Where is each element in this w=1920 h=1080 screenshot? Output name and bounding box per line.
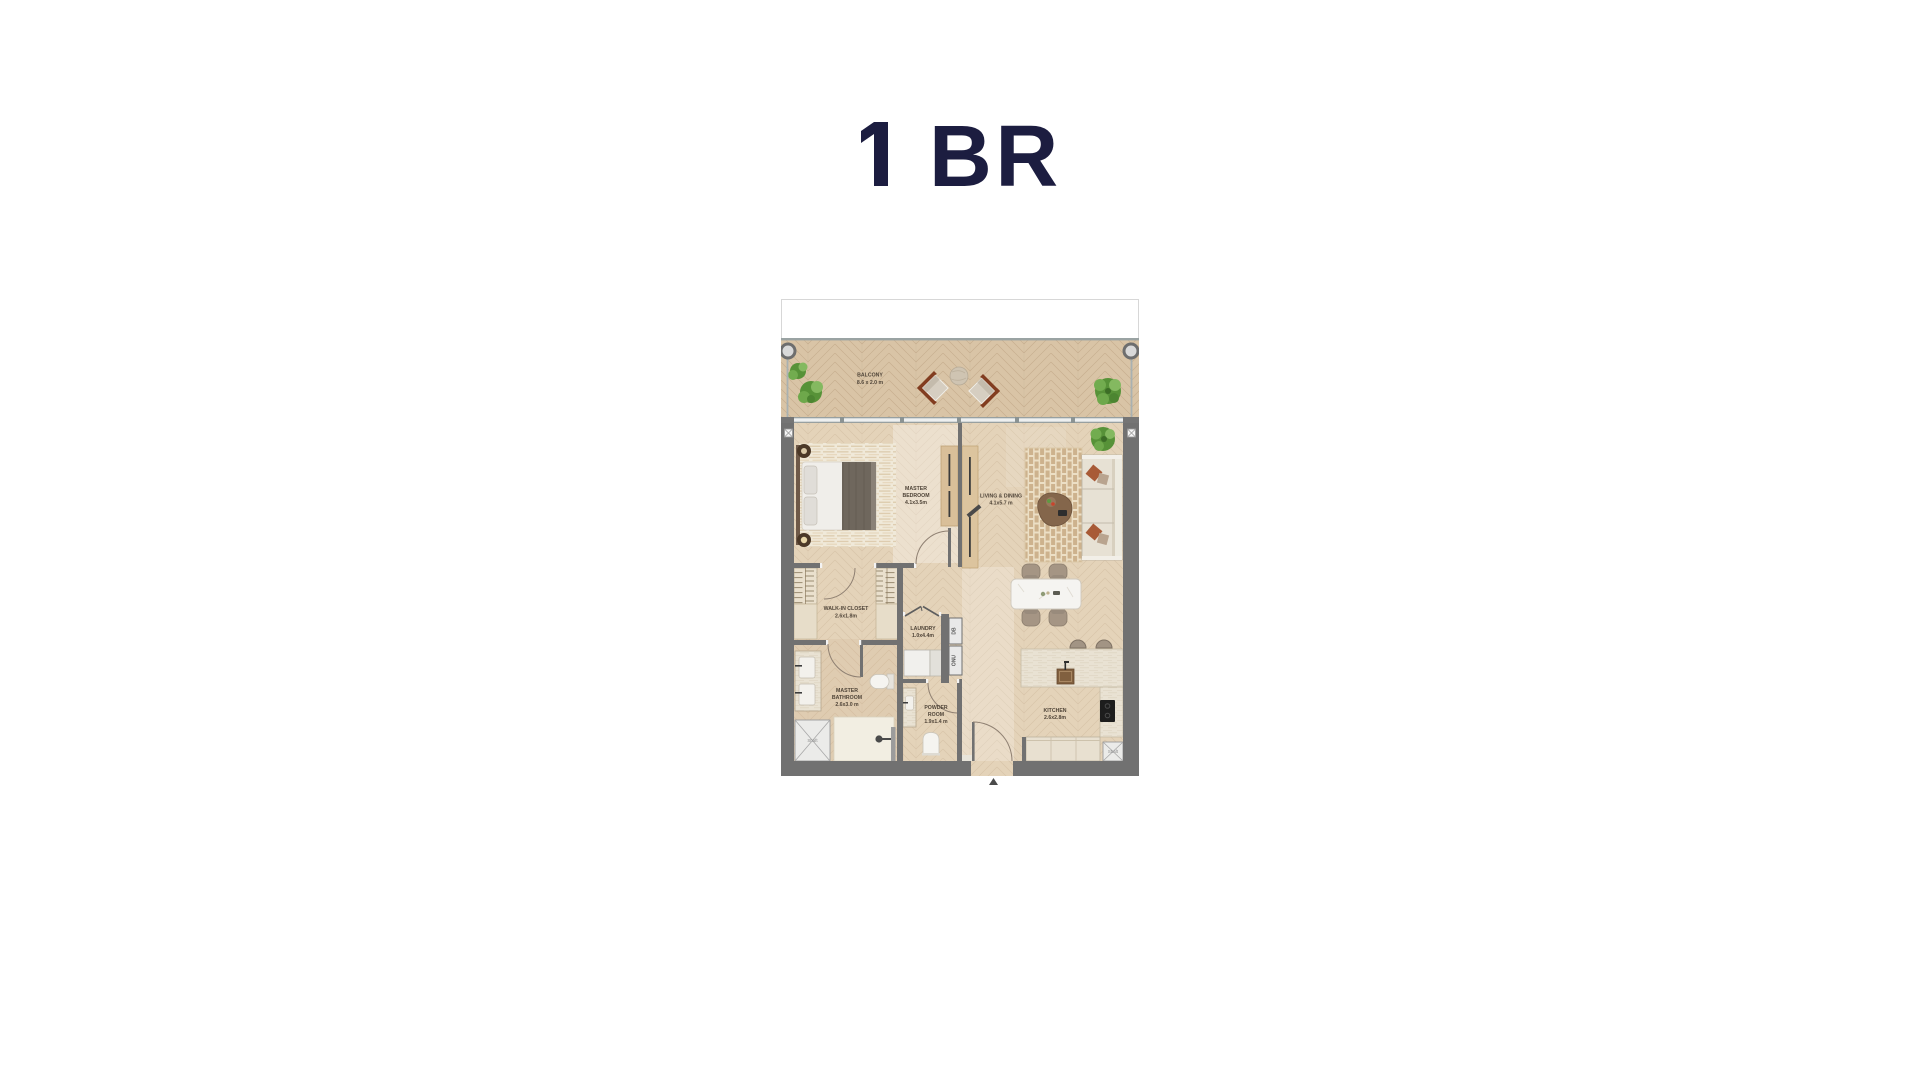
- svg-text:1.9x1.4 m: 1.9x1.4 m: [924, 719, 948, 725]
- svg-text:Shaft: Shaft: [807, 738, 818, 743]
- svg-text:8.6 x 2.0 m: 8.6 x 2.0 m: [857, 380, 884, 386]
- svg-text:ROOM: ROOM: [928, 712, 944, 718]
- svg-text:MASTER: MASTER: [836, 688, 858, 694]
- svg-text:LAUNDRY: LAUNDRY: [910, 626, 936, 632]
- svg-text:1.0x4.4m: 1.0x4.4m: [912, 633, 934, 639]
- svg-text:LIVING & DINING: LIVING & DINING: [980, 494, 1022, 500]
- svg-text:4.1x5.7 m: 4.1x5.7 m: [989, 501, 1013, 507]
- svg-text:DB: DB: [952, 627, 958, 635]
- svg-text:KITCHEN: KITCHEN: [1043, 708, 1066, 714]
- svg-text:Shaft: Shaft: [1108, 749, 1119, 754]
- svg-text:BALCONY: BALCONY: [857, 373, 883, 379]
- svg-text:ONU: ONU: [952, 655, 958, 667]
- svg-text:POWDER: POWDER: [924, 705, 948, 711]
- svg-text:BATHROOM: BATHROOM: [832, 695, 862, 701]
- svg-text:2.6x2.8m: 2.6x2.8m: [1044, 715, 1066, 721]
- svg-text:BEDROOM: BEDROOM: [902, 493, 929, 499]
- svg-text:2.6x1.8m: 2.6x1.8m: [835, 614, 857, 620]
- svg-text:BR: BR: [929, 108, 1062, 205]
- svg-text:4.1x3.5m: 4.1x3.5m: [905, 500, 927, 506]
- svg-text:2.6x3.0 m: 2.6x3.0 m: [835, 702, 859, 708]
- svg-text:WALK-IN CLOSET: WALK-IN CLOSET: [824, 606, 869, 612]
- svg-text:MASTER: MASTER: [905, 486, 927, 492]
